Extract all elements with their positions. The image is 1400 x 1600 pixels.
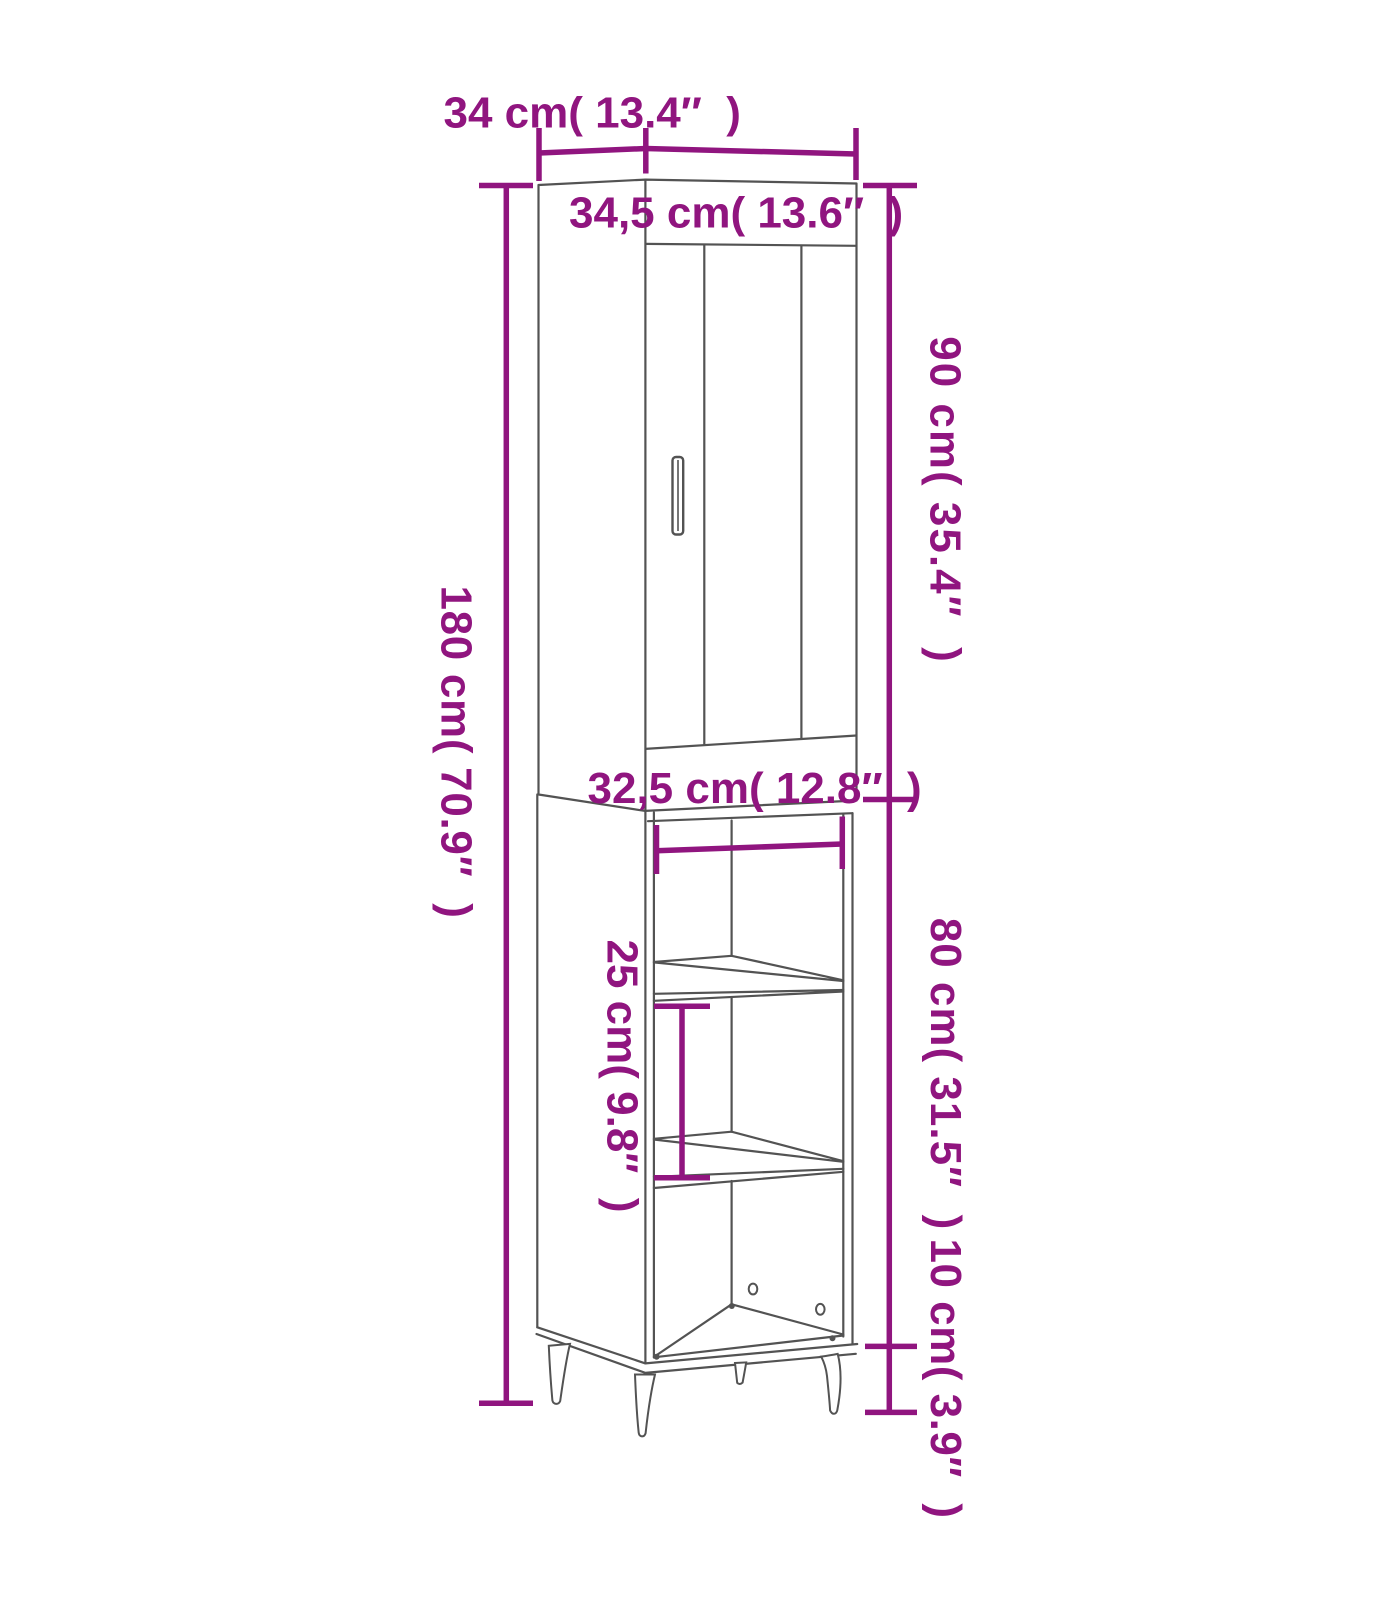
svg-text:34 cm( 13.4″ ): 34 cm( 13.4″ )	[444, 89, 741, 138]
svg-text:10 cm( 3.9″ ): 10 cm( 3.9″ )	[921, 1239, 970, 1519]
svg-text:25 cm( 9.8″ ): 25 cm( 9.8″ )	[598, 940, 647, 1213]
svg-text:34,5 cm( 13.6″ ): 34,5 cm( 13.6″ )	[569, 188, 903, 237]
svg-text:32,5 cm( 12.8″ ): 32,5 cm( 12.8″ )	[588, 764, 922, 813]
svg-text:90 cm( 35.4″ ): 90 cm( 35.4″ )	[921, 336, 970, 663]
svg-text:80 cm( 31.5″ ): 80 cm( 31.5″ )	[921, 918, 970, 1230]
svg-text:180 cm( 70.9″ ): 180 cm( 70.9″ )	[432, 585, 481, 918]
